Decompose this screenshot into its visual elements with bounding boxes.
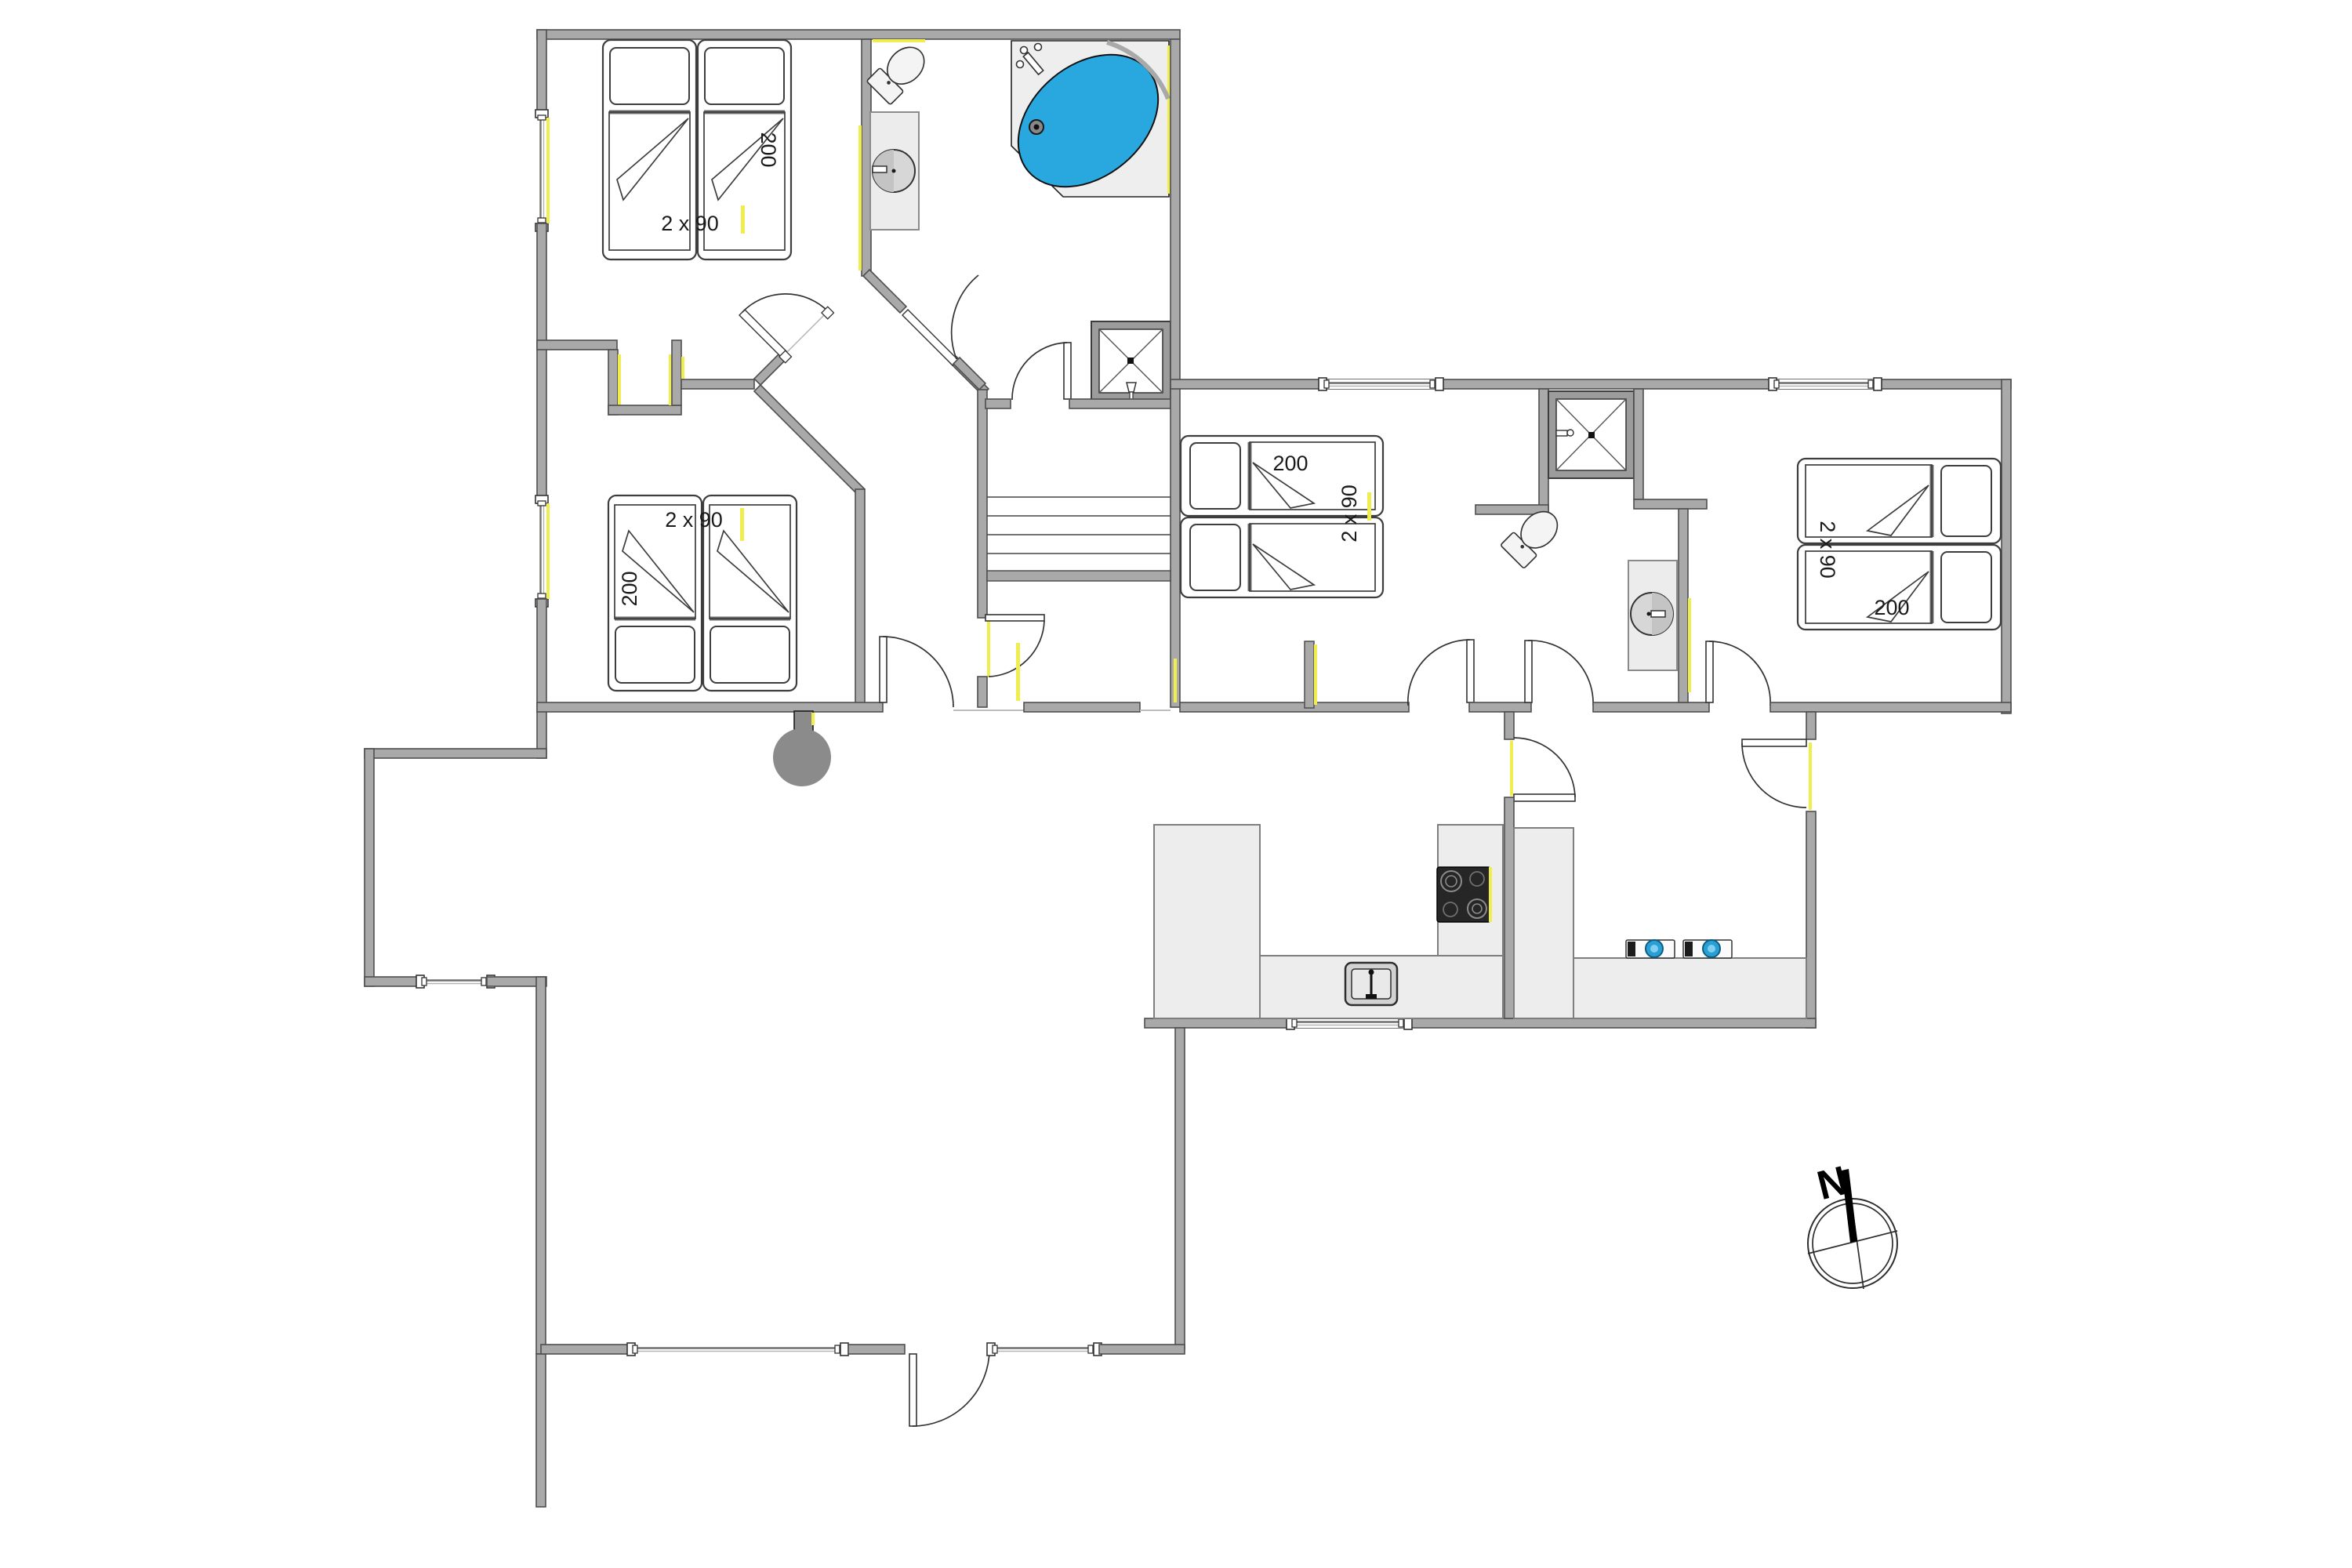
svg-text:200: 200 (618, 571, 641, 606)
svg-text:200: 200 (757, 132, 780, 167)
svg-text:2 x 90: 2 x 90 (1816, 521, 1839, 579)
svg-text:200: 200 (1874, 596, 1909, 619)
svg-text:2 x 90: 2 x 90 (1338, 485, 1361, 543)
svg-text:200: 200 (1272, 452, 1308, 475)
svg-text:2 x 90: 2 x 90 (661, 212, 719, 235)
svg-text:2 x 90: 2 x 90 (665, 508, 723, 532)
